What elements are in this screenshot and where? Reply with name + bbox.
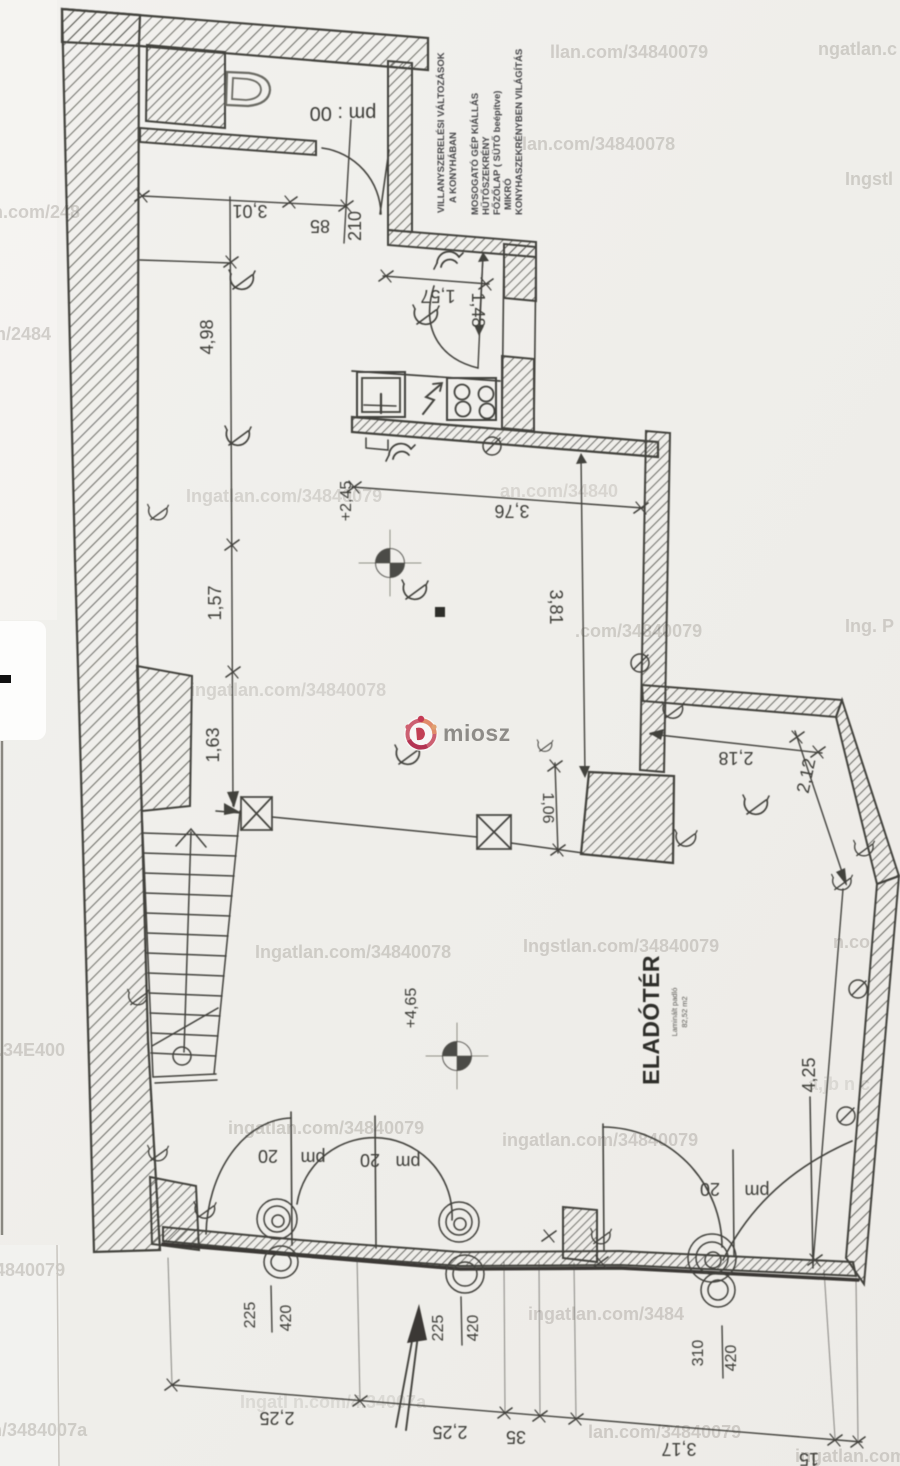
svg-text:420: 420 — [465, 1315, 482, 1342]
svg-text:MIKRÓ: MIKRÓ — [502, 178, 514, 210]
svg-text:an.com/34840: an.com/34840 — [500, 481, 618, 501]
svg-text:Ingstl: Ingstl — [845, 169, 893, 189]
svg-text:lan.com/34840078: lan.com/34840078 — [522, 134, 675, 154]
svg-text:m/3484007a: m/3484007a — [0, 1420, 88, 1440]
svg-text:1,48: 1,48 — [468, 292, 488, 327]
svg-text:Ingstlan.com/34840079: Ingstlan.com/34840079 — [523, 936, 719, 956]
svg-text:Laminált padló: Laminált padló — [670, 988, 679, 1037]
svg-text:1,57: 1,57 — [205, 585, 225, 620]
svg-text:/4840079: /4840079 — [0, 1260, 65, 1280]
svg-text:ngatlan.c: ngatlan.c — [818, 39, 897, 59]
svg-text:20: 20 — [700, 1179, 720, 1199]
svg-text:225: 225 — [430, 1315, 447, 1342]
svg-text:225: 225 — [242, 1302, 259, 1329]
svg-text:1,57: 1,57 — [420, 286, 455, 306]
svg-text:310: 310 — [690, 1340, 707, 1367]
svg-text:1,63: 1,63 — [203, 727, 223, 762]
svg-text:85: 85 — [310, 216, 330, 236]
svg-text:Ingatlan.com/34840078: Ingatlan.com/34840078 — [255, 942, 451, 962]
svg-text:FŐZŐLAP ( SÜTŐ beépítve): FŐZŐLAP ( SÜTŐ beépítve) — [491, 91, 503, 215]
svg-text:pm: pm — [300, 1148, 325, 1168]
svg-text:420: 420 — [723, 1345, 740, 1372]
svg-text:210: 210 — [345, 211, 365, 241]
svg-text:ingatlan.com/34840078: ingatlan.com/34840078 — [190, 680, 386, 700]
svg-text:pm : 00: pm : 00 — [310, 102, 377, 124]
svg-text:ELADÓTÉR: ELADÓTÉR — [637, 955, 664, 1085]
svg-text:miosz: miosz — [443, 720, 511, 746]
svg-text:35: 35 — [506, 1427, 526, 1447]
svg-text:pm: pm — [395, 1152, 420, 1172]
svg-text:20: 20 — [258, 1146, 278, 1166]
svg-text:4,98: 4,98 — [197, 319, 217, 354]
svg-text:ingatlan.com/3484: ingatlan.com/3484 — [528, 1304, 684, 1324]
svg-text:3,01: 3,01 — [232, 201, 267, 221]
svg-text:20: 20 — [360, 1150, 380, 1170]
svg-text:4,25: 4,25 — [799, 1057, 819, 1092]
svg-text:VILLANYSZERELÉSI VÁLTOZÁSOK: VILLANYSZERELÉSI VÁLTOZÁSOK — [436, 52, 447, 213]
svg-text:3,81: 3,81 — [546, 589, 566, 624]
svg-text:Ing. P: Ing. P — [845, 616, 894, 636]
svg-text:m/2484: m/2484 — [0, 324, 51, 344]
svg-text:.com/34840079: .com/34840079 — [575, 621, 702, 641]
svg-text:MOSOGATÓ GÉP KIÁLLÁS: MOSOGATÓ GÉP KIÁLLÁS — [469, 93, 481, 215]
svg-text:2,25: 2,25 — [432, 1422, 467, 1442]
svg-text:3,17: 3,17 — [661, 1439, 696, 1459]
svg-text:KONYHASZEKRÉNYBEN VILÁGÍTÁS: KONYHASZEKRÉNYBEN VILÁGÍTÁS — [514, 49, 525, 215]
svg-text:2,18: 2,18 — [718, 748, 753, 768]
svg-text:llan.com/34840079: llan.com/34840079 — [550, 42, 708, 62]
svg-text:HŰTŐSZEKRÉNY: HŰTŐSZEKRÉNY — [480, 136, 492, 215]
svg-text:2,25: 2,25 — [259, 1408, 294, 1428]
svg-text:pm: pm — [744, 1181, 769, 1201]
svg-text:82,52 m2: 82,52 m2 — [680, 996, 689, 1027]
svg-text:1,06: 1,06 — [539, 792, 556, 823]
svg-text:+2,45: +2,45 — [338, 481, 355, 522]
svg-text:15: 15 — [799, 1449, 819, 1466]
svg-text:+4,65: +4,65 — [403, 988, 420, 1029]
svg-text:A KONYHÁBAN: A KONYHÁBAN — [448, 132, 459, 203]
svg-text:...34E400: ...34E400 — [0, 1040, 65, 1060]
svg-text:3,76: 3,76 — [494, 501, 529, 521]
svg-text:420: 420 — [278, 1305, 295, 1332]
